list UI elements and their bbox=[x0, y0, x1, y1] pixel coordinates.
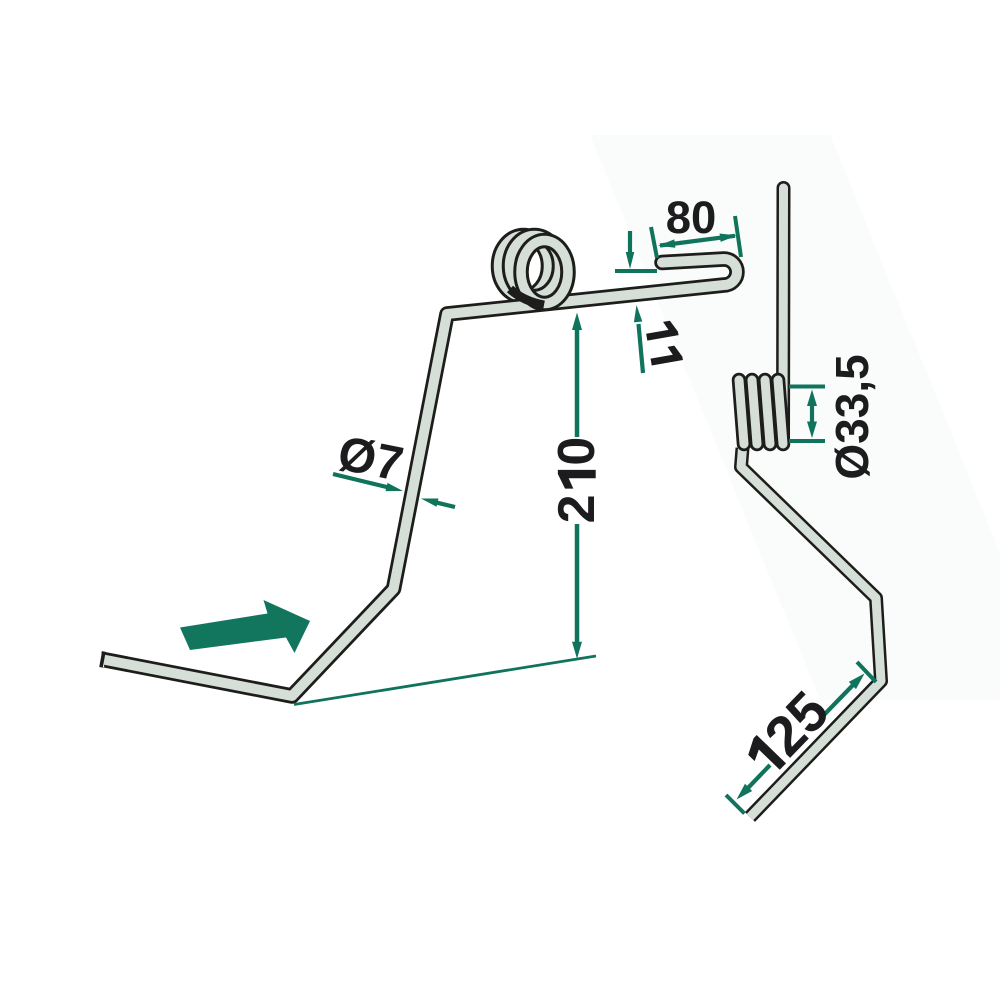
svg-text:2: 2 bbox=[548, 494, 606, 523]
svg-text:Ø33,5: Ø33,5 bbox=[826, 354, 878, 479]
svg-text:80: 80 bbox=[666, 192, 717, 243]
svg-text:0: 0 bbox=[548, 437, 606, 466]
